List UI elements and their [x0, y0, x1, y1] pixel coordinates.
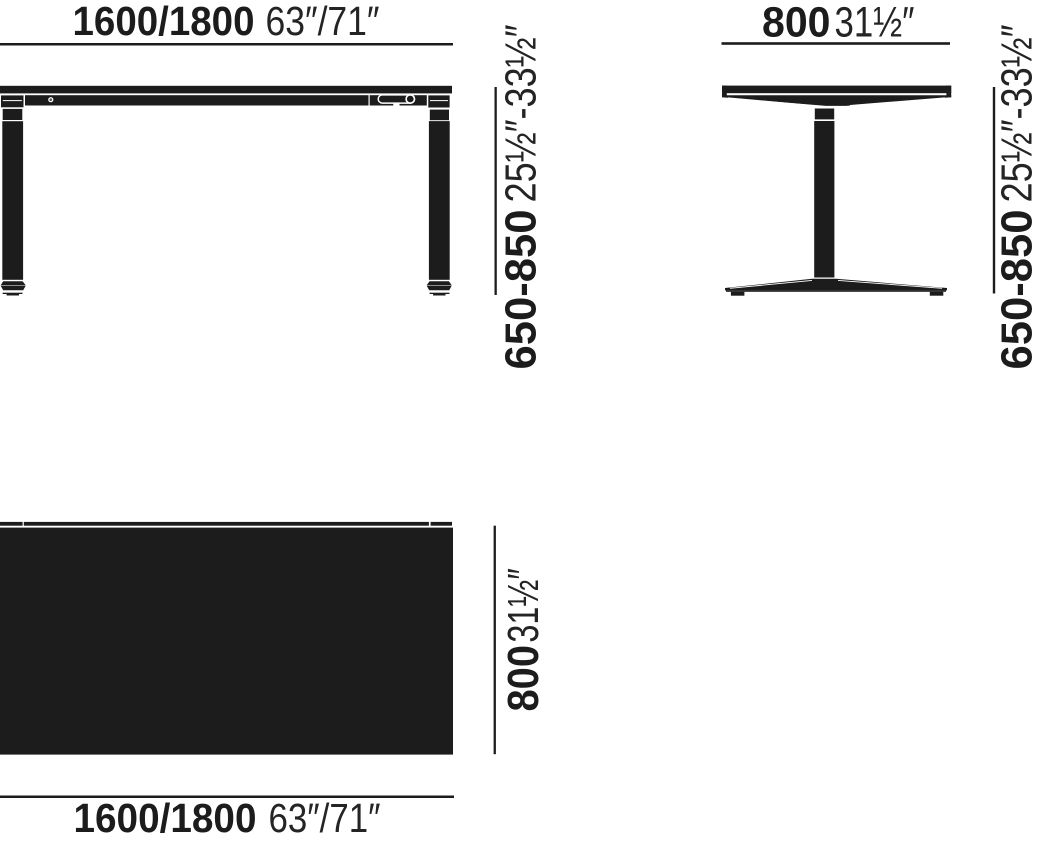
- svg-text:800: 800: [499, 645, 548, 712]
- svg-text:63″/71″: 63″/71″: [269, 795, 381, 841]
- svg-text:1600/1800: 1600/1800: [73, 0, 255, 44]
- svg-text:31½″: 31½″: [499, 568, 548, 643]
- svg-text:63″/71″: 63″/71″: [266, 0, 380, 44]
- svg-text:800: 800: [762, 0, 831, 46]
- svg-text:650-850: 650-850: [992, 210, 1041, 370]
- svg-text:31½″: 31½″: [835, 0, 915, 46]
- svg-text:25½″-33½″: 25½″-33½″: [992, 25, 1041, 203]
- svg-text:1600/1800: 1600/1800: [74, 795, 257, 841]
- svg-text:25½″-33½″: 25½″-33½″: [497, 25, 546, 203]
- svg-text:650-850: 650-850: [497, 210, 546, 370]
